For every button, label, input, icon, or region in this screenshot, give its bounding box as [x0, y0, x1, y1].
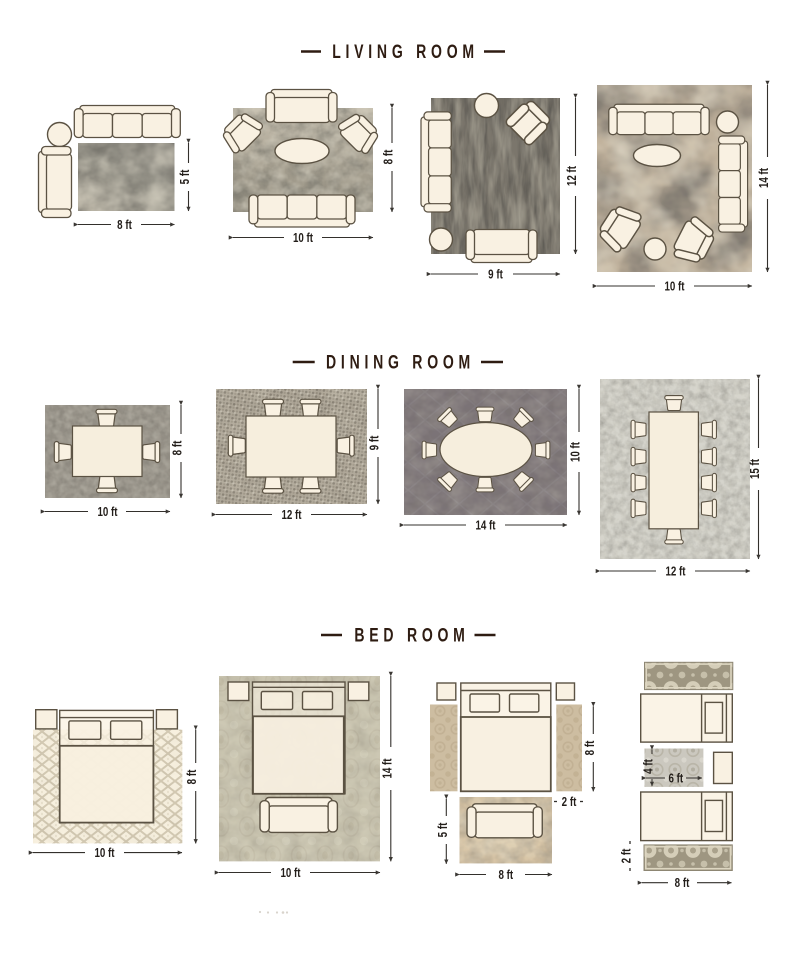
svg-text:8 ft: 8 ft: [170, 441, 185, 456]
svg-text:2 ft: 2 ft: [562, 795, 577, 810]
svg-text:9 ft: 9 ft: [367, 436, 382, 451]
svg-text:14 ft: 14 ft: [757, 168, 772, 188]
svg-text:8 ft: 8 ft: [381, 150, 396, 165]
svg-text:10 ft: 10 ft: [280, 866, 300, 881]
svg-text:4 ft: 4 ft: [641, 759, 656, 774]
svg-text:8 ft: 8 ft: [675, 876, 690, 891]
svg-text:10 ft: 10 ft: [568, 442, 583, 462]
svg-text:8 ft: 8 ft: [185, 770, 200, 785]
svg-text:8 ft: 8 ft: [498, 868, 513, 883]
svg-text:LIVING ROOM: LIVING ROOM: [332, 41, 479, 63]
svg-text:12 ft: 12 ft: [281, 508, 301, 523]
svg-text:8 ft: 8 ft: [582, 741, 597, 756]
svg-text:5 ft: 5 ft: [435, 823, 450, 838]
svg-text:10 ft: 10 ft: [94, 846, 114, 861]
svg-text:14 ft: 14 ft: [380, 758, 395, 778]
svg-text:2 ft: 2 ft: [619, 849, 634, 864]
svg-text:5 ft: 5 ft: [178, 170, 193, 185]
svg-text:9 ft: 9 ft: [488, 267, 503, 282]
svg-text:15 ft: 15 ft: [748, 459, 763, 479]
svg-text:10 ft: 10 ft: [97, 505, 117, 520]
svg-text:12 ft: 12 ft: [565, 166, 580, 186]
svg-text:DINING ROOM: DINING ROOM: [326, 351, 475, 373]
svg-text:12 ft: 12 ft: [665, 564, 685, 579]
svg-text:10 ft: 10 ft: [664, 279, 684, 294]
svg-text:8 ft: 8 ft: [117, 218, 132, 233]
svg-text:14 ft: 14 ft: [475, 518, 495, 533]
svg-text:6 ft: 6 ft: [668, 771, 683, 786]
svg-text:10 ft: 10 ft: [293, 231, 313, 246]
svg-text:BED ROOM: BED ROOM: [354, 624, 469, 646]
